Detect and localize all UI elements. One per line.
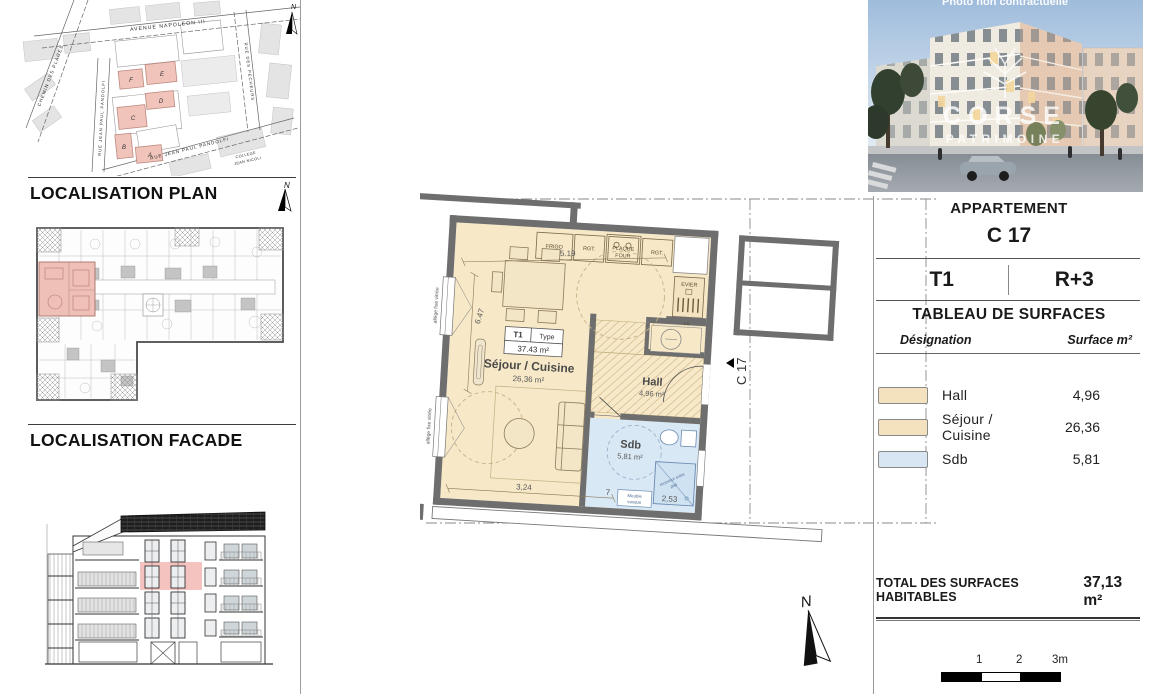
col-designation: Désignation bbox=[900, 333, 972, 347]
watermark-line1: CORSE bbox=[943, 102, 1067, 130]
hall-row-label: Hall bbox=[942, 387, 1030, 403]
unit-entrance-tag: C 17 bbox=[726, 358, 749, 385]
sejour-row-value: 26,36 bbox=[1030, 419, 1100, 435]
unit-floor: R+3 bbox=[1009, 268, 1141, 292]
water-heater-closet bbox=[650, 325, 701, 354]
scale-seg-3 bbox=[1021, 672, 1061, 682]
unit-number: C 17 bbox=[874, 224, 1144, 248]
block-c: C bbox=[131, 116, 136, 122]
scale-seg-1 bbox=[941, 672, 981, 682]
scale-label-1: 1 bbox=[976, 654, 982, 666]
localisation-facade-heading: LOCALISATION FACADE bbox=[30, 430, 242, 451]
hall-area: 4,96 m² bbox=[639, 389, 665, 400]
sdb-area: 5,81 m² bbox=[617, 451, 643, 462]
watermark-line2: PATRIMOINE bbox=[946, 132, 1065, 146]
scale-label-2: 2 bbox=[1016, 654, 1022, 666]
project-photo: CORSE PATRIMOINE Photo non contractuelle bbox=[868, 0, 1143, 192]
surface-table-title: TABLEAU DE SURFACES bbox=[874, 306, 1144, 324]
apartment-floor-plan: FRIGO RGT. PLAQUE FOUR RGT. EVIER LV bbox=[420, 185, 945, 545]
panel-divider-1 bbox=[876, 258, 1140, 259]
panel-divider-3 bbox=[876, 353, 1140, 354]
allege-label-2: allège fixe vitrée bbox=[425, 408, 433, 445]
evier-label: EVIER bbox=[681, 282, 698, 289]
surface-row-sejour: Séjour / Cuisine 26,36 bbox=[878, 418, 1134, 436]
stairwell bbox=[143, 294, 163, 316]
allege-label-1: allège fixe vitrée bbox=[433, 287, 441, 324]
apartment-info-panel: APPARTEMENT C 17 T1 R+3 TABLEAU DE SURFA… bbox=[873, 196, 1144, 694]
total-label: TOTAL DES SURFACES HABITABLES bbox=[876, 576, 1083, 604]
svg-text:N: N bbox=[799, 593, 813, 612]
unit-drawing: FRIGO RGT. PLAQUE FOUR RGT. EVIER LV bbox=[420, 193, 840, 544]
scale-seg-2 bbox=[981, 672, 1021, 682]
floor-level-plan bbox=[25, 210, 295, 415]
type-box: T1 Type 37.43 m² bbox=[504, 326, 563, 356]
tile-roof-band bbox=[121, 512, 265, 532]
sejour-color-swatch bbox=[878, 419, 928, 436]
typebox-t1: T1 bbox=[513, 330, 523, 340]
street-des-pecheurs: RUE DES PECHEURS bbox=[243, 42, 255, 101]
duct-box bbox=[673, 236, 709, 274]
panel-heading: APPARTEMENT bbox=[874, 200, 1144, 217]
sdb-label: Sdb bbox=[620, 439, 642, 452]
entrance-arrow-icon bbox=[726, 358, 734, 368]
localisation-plan-heading: LOCALISATION PLAN bbox=[30, 183, 218, 204]
divider-above-plan-heading bbox=[28, 177, 296, 178]
sdb-color-swatch bbox=[878, 451, 928, 468]
sejour-area: 26,36 m² bbox=[512, 374, 544, 385]
north-arrow-icon: N bbox=[786, 590, 842, 674]
typebox-area: 37.43 m² bbox=[517, 344, 549, 355]
facade-elevation bbox=[33, 492, 283, 692]
ground-floor bbox=[79, 642, 261, 664]
panel-divider-2 bbox=[876, 300, 1140, 301]
scale-labels: 1 2 3m bbox=[874, 654, 1144, 668]
block-f: F bbox=[129, 78, 133, 84]
total-value: 37,13 m² bbox=[1083, 574, 1140, 610]
street-pandolfi-vertical: RUE JEAN PAUL PANDOLFI bbox=[97, 80, 106, 156]
sdb-row-value: 5,81 bbox=[1030, 451, 1100, 467]
meuble-label-2: vasque bbox=[627, 499, 642, 505]
sdb-row-label: Sdb bbox=[942, 451, 1030, 467]
highlighted-unit-c17 bbox=[39, 262, 95, 316]
rgt1-label: RGT. bbox=[583, 246, 596, 253]
divider-above-facade-heading bbox=[28, 424, 296, 425]
photo-caption: Photo non contractuelle bbox=[942, 0, 1068, 8]
typebox-type: Type bbox=[539, 334, 555, 342]
hall-color-swatch bbox=[878, 387, 928, 404]
unit-type: T1 bbox=[876, 268, 1008, 292]
meuble-label-1: Meuble bbox=[627, 493, 642, 499]
surface-row-sdb: Sdb 5,81 bbox=[878, 450, 1134, 468]
svg-text:N: N bbox=[284, 181, 290, 190]
hall-row-value: 4,96 bbox=[1030, 387, 1100, 403]
rgt2-label: RGT. bbox=[651, 250, 664, 257]
plan-sheet-page: { "left": { "plan_heading": "LOCALISATIO… bbox=[0, 0, 1170, 694]
dim-b1: 3,24 bbox=[516, 482, 533, 492]
hall-label: Hall bbox=[642, 376, 663, 389]
dim-top: 5.19 bbox=[560, 249, 576, 258]
column-divider bbox=[300, 0, 301, 694]
site-location-map: F E D C B A AVENUE NAPOLEON III CHEMIN D… bbox=[22, 0, 302, 176]
panel-divider-4 bbox=[876, 620, 1140, 621]
scale-label-3: 3m bbox=[1052, 654, 1068, 666]
ledge-stub bbox=[420, 504, 424, 520]
sofa bbox=[555, 402, 585, 471]
type-floor-row: T1 R+3 bbox=[876, 262, 1140, 298]
dim-b3: 2,53 bbox=[662, 494, 679, 504]
scale-bar bbox=[941, 672, 1061, 682]
block-d: D bbox=[159, 99, 164, 105]
sejour-row-label: Séjour / Cuisine bbox=[942, 411, 1030, 443]
plan-heading-north-arrow-icon: N bbox=[274, 180, 296, 212]
vanity: Meuble vasque bbox=[617, 489, 652, 507]
unit-tag-text: C 17 bbox=[734, 358, 749, 385]
col-surface: Surface m² bbox=[1067, 333, 1132, 347]
surface-table-header: Désignation Surface m² bbox=[900, 333, 1132, 347]
block-b: B bbox=[122, 145, 126, 151]
surface-row-hall: Hall 4,96 bbox=[878, 386, 1134, 404]
total-surface-row: TOTAL DES SURFACES HABITABLES 37,13 m² bbox=[876, 574, 1140, 619]
